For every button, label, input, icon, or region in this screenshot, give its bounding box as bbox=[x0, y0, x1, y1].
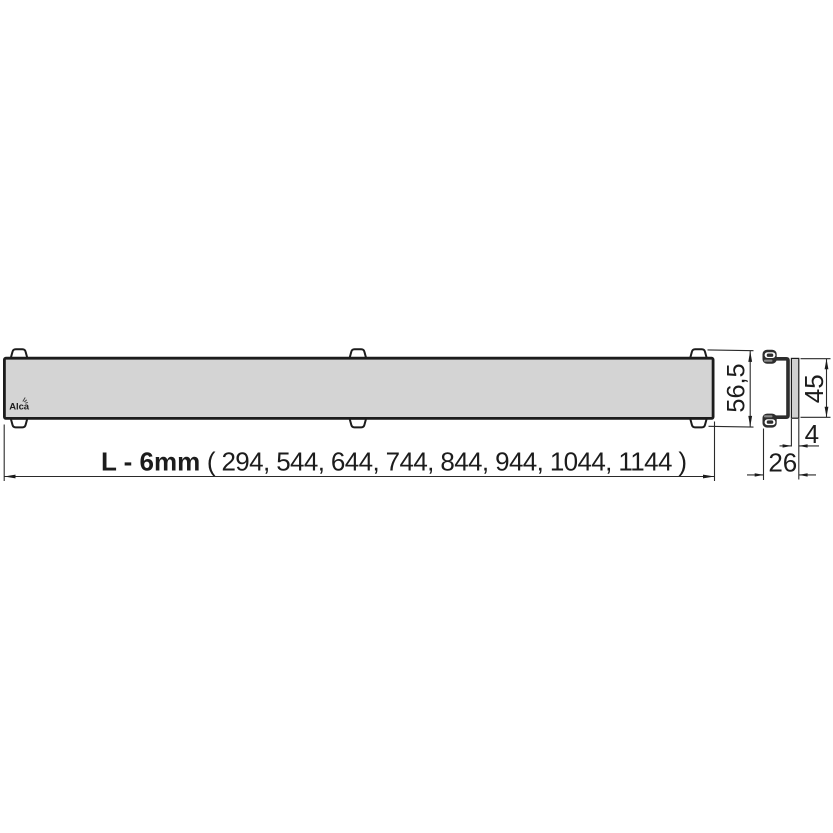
svg-text:45: 45 bbox=[799, 374, 829, 403]
svg-text:26: 26 bbox=[768, 448, 797, 478]
svg-text:L - 6mm ( 294, 544, 644, 744,: L - 6mm ( 294, 544, 644, 744, 844, 944, … bbox=[101, 447, 686, 477]
svg-text:Alca: Alca bbox=[9, 402, 29, 413]
svg-text:56,5: 56,5 bbox=[723, 363, 751, 412]
svg-text:4: 4 bbox=[805, 419, 819, 449]
